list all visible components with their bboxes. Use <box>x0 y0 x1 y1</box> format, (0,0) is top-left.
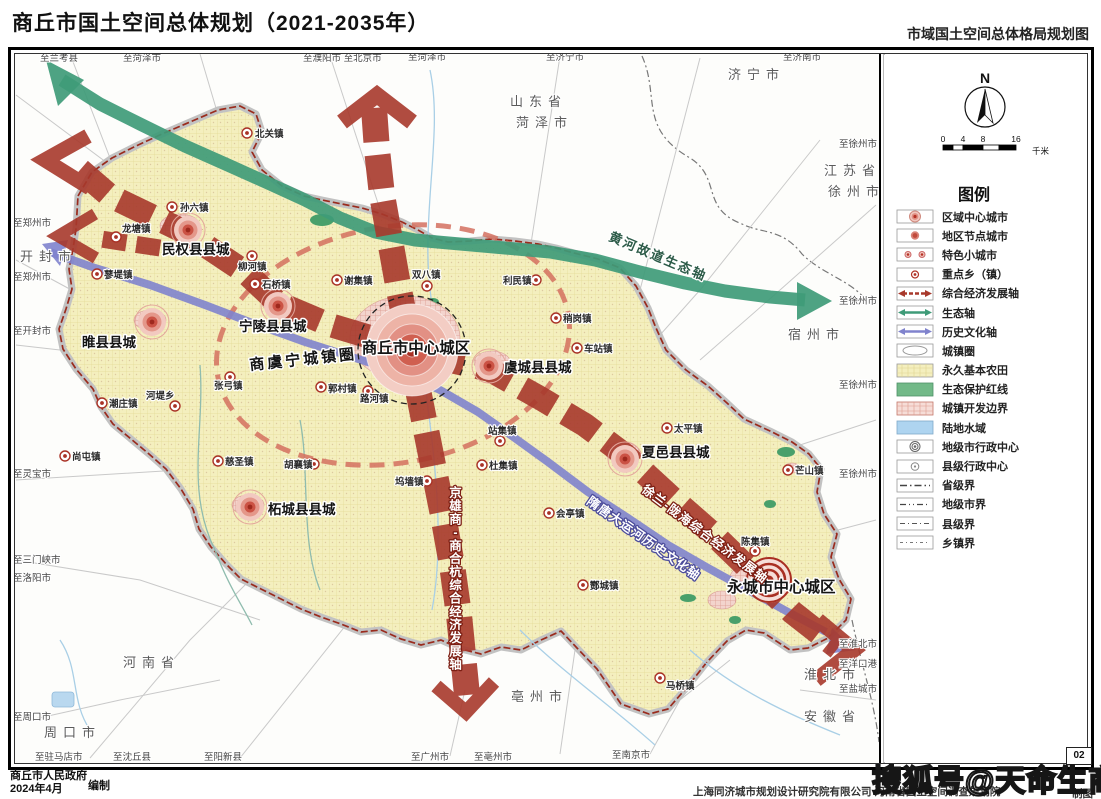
legend-item-label: 特色小城市 <box>942 247 997 263</box>
town-label: 稍岗镇 <box>563 313 592 325</box>
city-label: 夏邑县县城 <box>641 444 710 460</box>
legend-item-admin-county: 县级行政中心 <box>896 456 1019 475</box>
legend-item-label: 地区节点城市 <box>942 228 1008 244</box>
legend-title: 图例 <box>884 181 1064 205</box>
town-label: 龙塘镇 <box>121 223 151 235</box>
town-label: 石桥镇 <box>261 279 291 291</box>
city-label: 虞城县县城 <box>504 359 572 375</box>
legend-items: 区域中心城市地区节点城市特色小城市重点乡（镇）综合经济发展轴生态轴历史文化轴城镇… <box>896 207 1019 552</box>
town-marker: 蓼堤镇 <box>92 269 133 281</box>
lake-water <box>52 692 74 707</box>
urban-boundary-icon <box>896 401 934 416</box>
town-label: 太平镇 <box>674 423 703 435</box>
legend-item-label: 区域中心城市 <box>942 209 1008 225</box>
direction-label: 至阳新县 <box>204 751 242 763</box>
city-label: 柘城县县城 <box>267 501 336 517</box>
legend-item-border-city: 地级市界 <box>896 495 1019 514</box>
legend-item-urban-boundary: 城镇开发边界 <box>896 399 1019 418</box>
north-label: N <box>980 70 990 86</box>
region-label: 河南省 <box>123 655 180 670</box>
legend-item-farmland: 永久基本农田 <box>896 361 1019 380</box>
town-label: 马桥镇 <box>666 680 695 692</box>
town-label: 蓼堤镇 <box>103 269 133 281</box>
direction-label: 至郑州市 <box>13 217 52 229</box>
town-label: 酂城镇 <box>589 580 619 592</box>
direction-label: 至盐城市 <box>839 683 878 695</box>
region-label: 济宁市 <box>728 67 785 82</box>
legend-item-label: 永久基本农田 <box>942 362 1008 378</box>
direction-label: 至三门峡市 <box>13 554 61 566</box>
city-label: 睢县县城 <box>82 334 136 350</box>
direction-label: 至徐州市 <box>839 138 878 150</box>
region-label: 菏泽市 <box>516 115 573 130</box>
axis-label-vertical: 京雄商-商合杭综合经济发展轴 <box>448 485 463 672</box>
farmland-icon <box>896 363 934 378</box>
town-marker: 稍岗镇 <box>551 313 592 325</box>
region-label: 宿州市 <box>788 327 845 342</box>
legend-item-axis-eco: 生态轴 <box>896 303 1019 322</box>
direction-label: 至郑州市 <box>13 271 52 283</box>
town-key-icon <box>896 267 934 282</box>
town-marker: 坞墙镇 <box>395 476 432 488</box>
plan-sheet: 商丘市国土空间总体规划（2021-2035年） 市域国土空间总体格局规划图 <box>0 0 1101 799</box>
town-label: 胡襄镇 <box>284 459 313 471</box>
direction-label: 至周口市 <box>13 711 52 723</box>
town-label: 潮庄镇 <box>109 398 138 410</box>
legend-item-town-circle: 城镇圈 <box>896 341 1019 360</box>
publish-date: 2024年4月 <box>10 783 87 796</box>
direction-label: 至徐州市 <box>839 468 878 480</box>
border-city-icon <box>896 497 934 512</box>
direction-label: 至沈丘县 <box>113 751 151 763</box>
direction-label: 至亳州市 <box>474 751 513 763</box>
town-marker: 杜集镇 <box>477 460 518 472</box>
legend-item-label: 城镇开发边界 <box>942 400 1008 416</box>
town-label: 双八镇 <box>411 269 441 281</box>
legend-item-town-key: 重点乡（镇） <box>896 265 1019 284</box>
legend-item-label: 县级界 <box>942 516 975 532</box>
scale-tick: 0 <box>941 134 946 144</box>
legend-item-axis-economic: 综合经济发展轴 <box>896 284 1019 303</box>
scale-tick: 16 <box>1011 134 1021 144</box>
publisher-role: 编制 <box>88 777 110 793</box>
town-marker: 谢集镇 <box>332 275 373 287</box>
region-label: 山东省 <box>510 94 567 109</box>
direction-label: 至济南市 <box>783 51 822 63</box>
town-label: 孙六镇 <box>180 202 209 214</box>
legend-item-axis-history: 历史文化轴 <box>896 322 1019 341</box>
watermark-text: 搜狐号@天命生商 <box>872 756 1101 799</box>
legend-item-city-regional: 区域中心城市 <box>896 207 1019 226</box>
scale-tick: 8 <box>981 134 986 144</box>
north-arrow: N <box>946 69 1026 131</box>
legend-item-admin-city: 地级市行政中心 <box>896 437 1019 456</box>
legend-item-border-county: 县级界 <box>896 514 1019 533</box>
town-label: 坞墙镇 <box>395 476 424 488</box>
town-label: 郭村镇 <box>328 383 357 395</box>
town-marker: 芒山镇 <box>783 465 824 477</box>
direction-label: 至灵宝市 <box>13 468 52 480</box>
border-town-icon <box>896 535 934 550</box>
town-label: 利民镇 <box>502 275 532 287</box>
legend-item-border-province: 省级界 <box>896 476 1019 495</box>
region-label: 徐州市 <box>828 184 885 199</box>
town-label: 会亭镇 <box>556 508 585 520</box>
legend-item-eco-redline: 生态保护红线 <box>896 380 1019 399</box>
eco-redline-icon <box>896 382 934 397</box>
city-label: 永城市中心城区 <box>726 577 836 596</box>
legend-item-label: 综合经济发展轴 <box>942 285 1019 301</box>
town-label: 谢集镇 <box>344 275 373 287</box>
legend-item-label: 城镇圈 <box>942 343 975 359</box>
axis-history-icon <box>896 324 934 339</box>
region-label: 开封市 <box>20 249 77 264</box>
publisher-block: 商丘市人民政府 2024年4月 <box>10 770 87 796</box>
town-label: 杜集镇 <box>489 460 518 472</box>
town-label: 河堤乡 <box>146 390 175 402</box>
town-label: 陈集镇 <box>741 536 770 548</box>
city-label: 商丘市中心城区 <box>362 338 471 357</box>
legend-item-label: 历史文化轴 <box>942 324 997 340</box>
legend-item-label: 省级界 <box>942 477 975 493</box>
direction-label: 至徐州市 <box>839 379 878 391</box>
city-label: 民权县县城 <box>162 241 230 257</box>
town-label: 北关镇 <box>255 128 284 140</box>
axis-eco-icon <box>896 305 934 320</box>
legend-item-city-node: 地区节点城市 <box>896 226 1019 245</box>
legend-item-label: 生态轴 <box>942 305 975 321</box>
legend-panel: N 04816 千米 图例 区域中心城市地区节点城市特色小城市重点乡（镇）综合经… <box>884 55 1086 762</box>
town-label: 车站镇 <box>584 343 613 355</box>
publisher-name: 商丘市人民政府 <box>10 770 87 783</box>
scale-tick: 4 <box>961 134 966 144</box>
town-marker: 北关镇 <box>242 128 284 140</box>
city-small-icon <box>896 247 934 262</box>
water-icon <box>896 420 934 435</box>
border-province-icon <box>896 478 934 493</box>
legend-item-label: 重点乡（镇） <box>942 266 1008 282</box>
legend-item-label: 生态保护红线 <box>942 381 1008 397</box>
border-county-icon <box>896 516 934 531</box>
legend-item-label: 县级行政中心 <box>942 458 1008 474</box>
legend-item-city-small: 特色小城市 <box>896 245 1019 264</box>
legend-item-water: 陆地水域 <box>896 418 1019 437</box>
direction-label: 至广州市 <box>411 751 450 763</box>
town-marker: 胡襄镇 <box>284 459 319 471</box>
town-label: 路河镇 <box>360 393 389 405</box>
direction-label: 至南京市 <box>612 749 651 761</box>
town-marker: 太平镇 <box>662 423 703 435</box>
region-label: 周口市 <box>44 725 101 740</box>
map-content: 商丘市中心城区民权县县城宁陵县县城睢县县城柘城县县城虞城县县城夏邑县县城永城市中… <box>13 51 885 763</box>
scale-unit: 千米 <box>1032 146 1050 156</box>
town-marker: 利民镇 <box>502 275 541 287</box>
direction-label: 至洋口港 <box>839 658 878 670</box>
direction-label: 至淮北市 <box>839 638 878 650</box>
city-node-icon <box>896 228 934 243</box>
town-marker: 酂城镇 <box>578 580 619 592</box>
region-label: 江苏省 <box>824 163 881 178</box>
admin-city-icon <box>896 439 934 454</box>
direction-label: 至洛阳市 <box>13 572 52 584</box>
town-label: 尚屯镇 <box>72 451 101 463</box>
axis-economic-icon <box>896 286 934 301</box>
direction-label: 至驻马店市 <box>35 751 83 763</box>
town-label: 慈圣镇 <box>225 456 254 468</box>
town-marker: 潮庄镇 <box>97 398 138 410</box>
town-label: 芒山镇 <box>795 465 824 477</box>
town-marker: 孙六镇 <box>167 202 209 214</box>
town-marker: 石桥镇 <box>250 279 291 291</box>
town-label: 柳河镇 <box>238 261 267 273</box>
legend-item-label: 乡镇界 <box>942 535 975 551</box>
town-marker: 慈圣镇 <box>213 456 254 468</box>
direction-label: 至济宁市 <box>546 51 585 63</box>
town-label: 站集镇 <box>488 425 517 437</box>
town-circle-icon <box>896 343 934 358</box>
region-label: 安徽省 <box>804 709 861 724</box>
legend-item-label: 陆地水域 <box>942 420 986 436</box>
town-label: 张弓镇 <box>214 380 243 392</box>
legend-item-label: 地级市行政中心 <box>942 439 1019 455</box>
legend-item-label: 地级市界 <box>942 496 986 512</box>
city-regional-icon <box>896 209 934 224</box>
town-marker: 尚屯镇 <box>60 451 101 463</box>
direction-label: 至开封市 <box>13 325 52 337</box>
city-label: 宁陵县县城 <box>239 318 307 334</box>
direction-label: 至徐州市 <box>839 295 878 307</box>
legend-item-border-town: 乡镇界 <box>896 533 1019 552</box>
town-marker: 车站镇 <box>572 343 613 355</box>
admin-county-icon <box>896 459 934 474</box>
direction-label: 至菏泽市 <box>408 51 447 63</box>
scale-bar: 04816 千米 <box>936 133 1056 159</box>
region-label: 亳州市 <box>511 689 568 704</box>
town-marker: 会亭镇 <box>544 508 585 520</box>
